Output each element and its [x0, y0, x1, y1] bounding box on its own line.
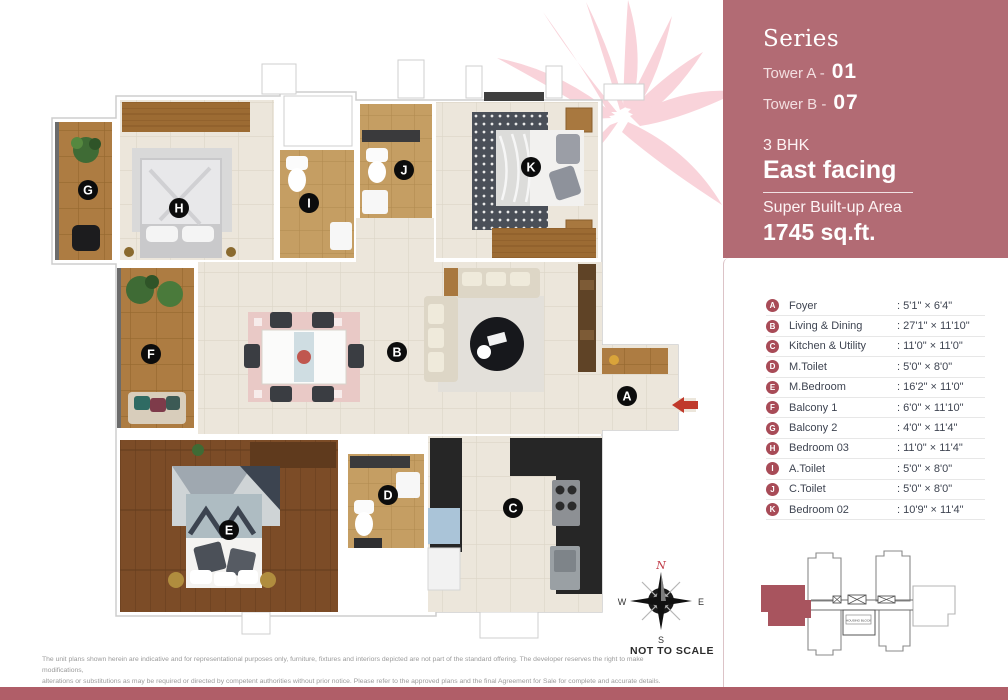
legend-row: BLiving & Dining: 27'1" × 11'10" [766, 316, 985, 336]
legend-badge: J [766, 483, 779, 496]
tower-b-label: Tower B - [763, 96, 826, 113]
room-legend: AFoyer: 5'1" × 6'4" BLiving & Dining: 27… [724, 296, 1008, 520]
badge-B: B [392, 346, 401, 360]
disclaimer: The unit plans shown herein are indicati… [42, 654, 682, 688]
legend-badge: C [766, 340, 779, 353]
legend-name: Balcony 1 [789, 402, 897, 414]
bhk-label: 3 BHK [763, 137, 1008, 155]
legend-badge: F [766, 401, 779, 414]
legend-badge: D [766, 360, 779, 373]
room-kitchen [428, 436, 602, 612]
duct-shaft [284, 96, 352, 146]
legend-row: KBedroom 02: 10'9" × 11'4" [766, 500, 985, 520]
legend-dimension: : 5'0" × 8'0" [897, 463, 985, 475]
unit-info-panel: Series Tower A - 01 Tower B - 07 3 BHK E… [723, 0, 1008, 258]
legend-name: C.Toilet [789, 483, 897, 495]
badge-I: I [307, 197, 310, 211]
brochure-page: G H I J K F B A E D C N W E S NOT TO SCA… [0, 0, 1008, 700]
legend-dimension: : 11'0" × 11'4" [897, 442, 985, 454]
legend-dimension: : 4'0" × 11'4" [897, 422, 985, 434]
legend-row: CKitchen & Utility: 11'0" × 11'0" [766, 337, 985, 357]
sidebar-lower: AFoyer: 5'1" × 6'4" BLiving & Dining: 27… [723, 258, 1008, 687]
compass-n: N [655, 559, 666, 572]
badge-H: H [174, 202, 183, 216]
floor-plan: G H I J K F B A E D C N W E S NOT TO SCA… [0, 0, 723, 687]
badge-D: D [383, 489, 392, 503]
sidebar: Series Tower A - 01 Tower B - 07 3 BHK E… [723, 0, 1008, 687]
tower-b-row: Tower B - 07 [763, 91, 1008, 115]
panel-divider [763, 192, 913, 193]
room-c-toilet [360, 104, 432, 218]
legend-dimension: : 5'0" × 8'0" [897, 483, 985, 495]
legend-name: A.Toilet [789, 463, 897, 475]
legend-badge: K [766, 503, 779, 516]
legend-badge: E [766, 381, 779, 394]
badge-A: A [622, 390, 631, 404]
tower-a-row: Tower A - 01 [763, 60, 1008, 84]
area-label: Super Built-up Area [763, 199, 1008, 217]
legend-row: HBedroom 03: 11'0" × 11'4" [766, 439, 985, 459]
legend-row: FBalcony 1: 6'0" × 11'10" [766, 398, 985, 418]
legend-name: Bedroom 02 [789, 504, 897, 516]
room-bedroom-03 [120, 100, 274, 260]
legend-row: AFoyer: 5'1" × 6'4" [766, 296, 985, 316]
legend-name: M.Toilet [789, 361, 897, 373]
badge-J: J [401, 164, 408, 178]
legend-row: EM.Bedroom: 16'2" × 11'0" [766, 378, 985, 398]
series-title: Series [763, 26, 1008, 52]
legend-dimension: : 27'1" × 11'10" [897, 320, 985, 332]
legend-badge: I [766, 462, 779, 475]
legend-badge: B [766, 320, 779, 333]
compass-w: W [618, 597, 627, 607]
tower-a-label: Tower A - [763, 65, 825, 82]
legend-row: DM.Toilet: 5'0" × 8'0" [766, 357, 985, 377]
legend-row: GBalcony 2: 4'0" × 11'4" [766, 418, 985, 438]
badge-E: E [225, 524, 233, 538]
legend-dimension: : 11'0" × 11'0" [897, 340, 985, 352]
legend-name: Living & Dining [789, 320, 897, 332]
legend-name: M.Bedroom [789, 381, 897, 393]
badge-C: C [508, 502, 517, 516]
legend-dimension: : 5'1" × 6'4" [897, 300, 985, 312]
legend-dimension: : 5'0" × 8'0" [897, 361, 985, 373]
legend-row: JC.Toilet: 5'0" × 8'0" [766, 480, 985, 500]
disclaimer-line-1: The unit plans shown herein are indicati… [42, 654, 682, 676]
facing-label: East facing [763, 156, 1008, 185]
compass: N W E S NOT TO SCALE [618, 559, 714, 657]
badge-K: K [526, 161, 535, 175]
legend-name: Balcony 2 [789, 422, 897, 434]
legend-badge: H [766, 442, 779, 455]
legend-name: Kitchen & Utility [789, 340, 897, 352]
legend-badge: A [766, 299, 779, 312]
passage [356, 218, 434, 262]
tower-b-number: 07 [833, 91, 858, 115]
legend-row: IA.Toilet: 5'0" × 8'0" [766, 459, 985, 479]
legend-dimension: : 10'9" × 11'4" [897, 504, 985, 516]
badge-F: F [147, 348, 155, 362]
tower-a-number: 01 [832, 60, 857, 84]
legend-dimension: : 6'0" × 11'10" [897, 402, 985, 414]
key-plan: HOUSING BLOCK [754, 546, 966, 664]
area-value: 1745 sq.ft. [763, 219, 1008, 246]
bottom-accent-bar [0, 687, 1008, 700]
disclaimer-line-2: alterations or substitutions as may be r… [42, 676, 682, 687]
compass-s: S [658, 635, 664, 645]
badge-G: G [83, 184, 93, 198]
highlighted-unit [761, 585, 811, 626]
legend-dimension: : 16'2" × 11'0" [897, 381, 985, 393]
legend-name: Foyer [789, 300, 897, 312]
compass-e: E [698, 597, 704, 607]
legend-badge: G [766, 422, 779, 435]
legend-name: Bedroom 03 [789, 442, 897, 454]
keyplan-block-label: HOUSING BLOCK [846, 619, 871, 623]
room-bedroom-02 [436, 102, 598, 258]
